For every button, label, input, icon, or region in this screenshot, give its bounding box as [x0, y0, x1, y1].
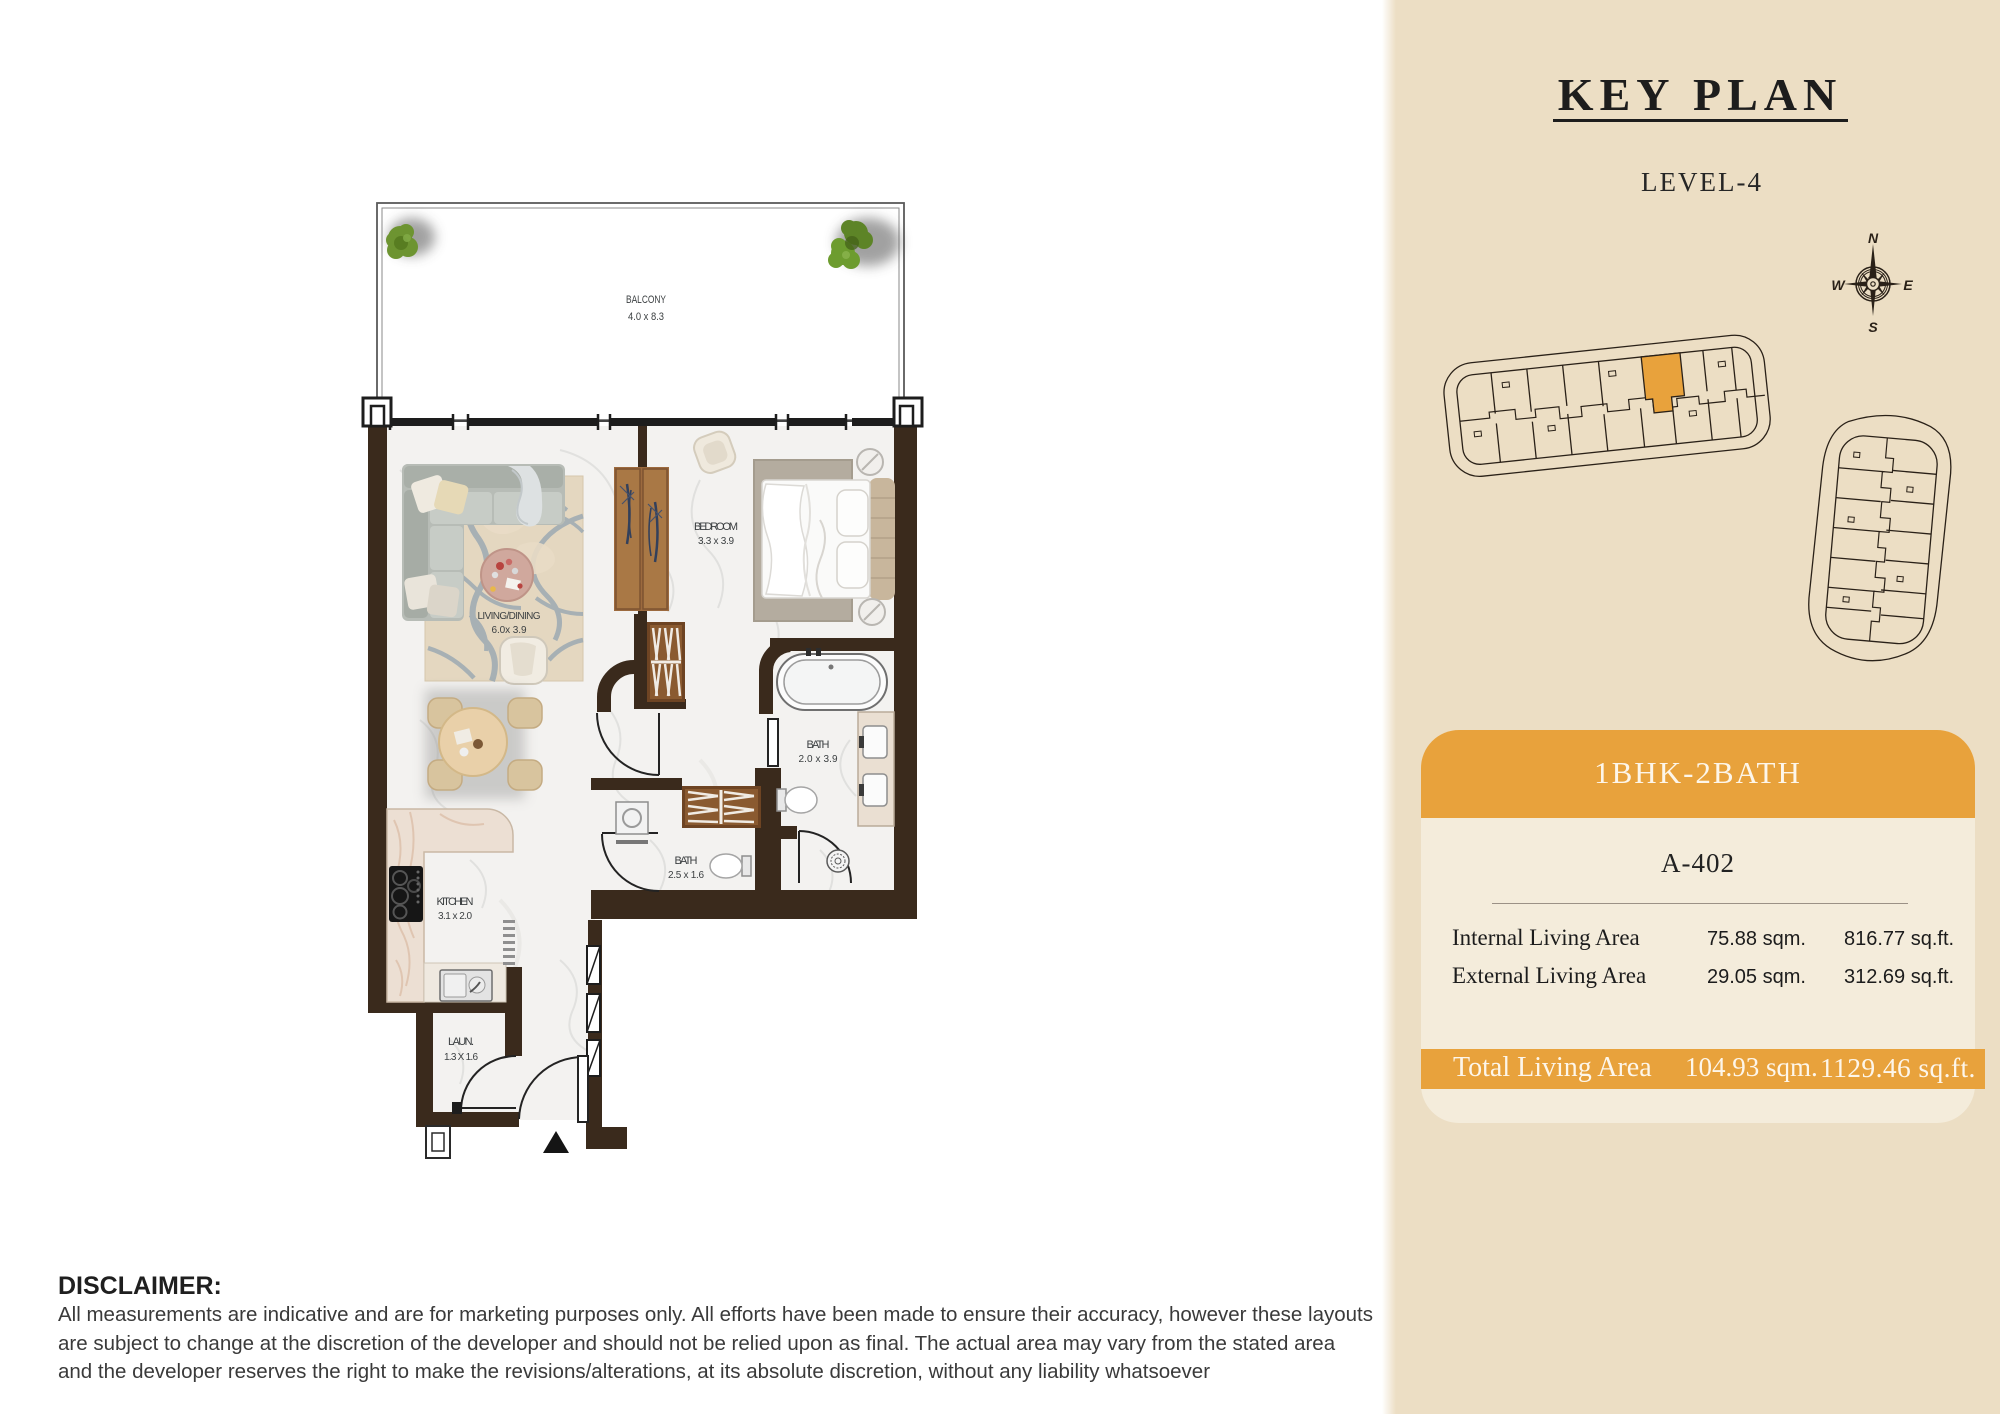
- svg-text:BATH: BATH: [675, 855, 698, 867]
- svg-text:3.1 x 2.0: 3.1 x 2.0: [438, 911, 472, 922]
- svg-text:LAUN.: LAUN.: [448, 1036, 474, 1048]
- svg-text:2.0 x 3.9: 2.0 x 3.9: [799, 754, 838, 765]
- svg-text:N: N: [1868, 230, 1879, 246]
- svg-text:BALCONY: BALCONY: [626, 294, 667, 306]
- svg-text:BEDROOM: BEDROOM: [694, 521, 738, 533]
- svg-text:6.0x 3.9: 6.0x 3.9: [492, 625, 527, 636]
- svg-text:3.3 x 3.9: 3.3 x 3.9: [698, 536, 734, 547]
- svg-text:E: E: [1903, 277, 1913, 293]
- svg-text:1.3 X 1.6: 1.3 X 1.6: [444, 1052, 478, 1063]
- svg-text:2.5 x 1.6: 2.5 x 1.6: [668, 870, 704, 881]
- svg-text:BATH: BATH: [807, 739, 830, 751]
- svg-text:LIVING/DINING: LIVING/DINING: [478, 611, 541, 622]
- svg-text:4.0 x 8.3: 4.0 x 8.3: [628, 311, 664, 323]
- svg-text:KITCHEN: KITCHEN: [437, 896, 474, 908]
- svg-text:W: W: [1831, 277, 1846, 293]
- svg-text:S: S: [1868, 319, 1878, 335]
